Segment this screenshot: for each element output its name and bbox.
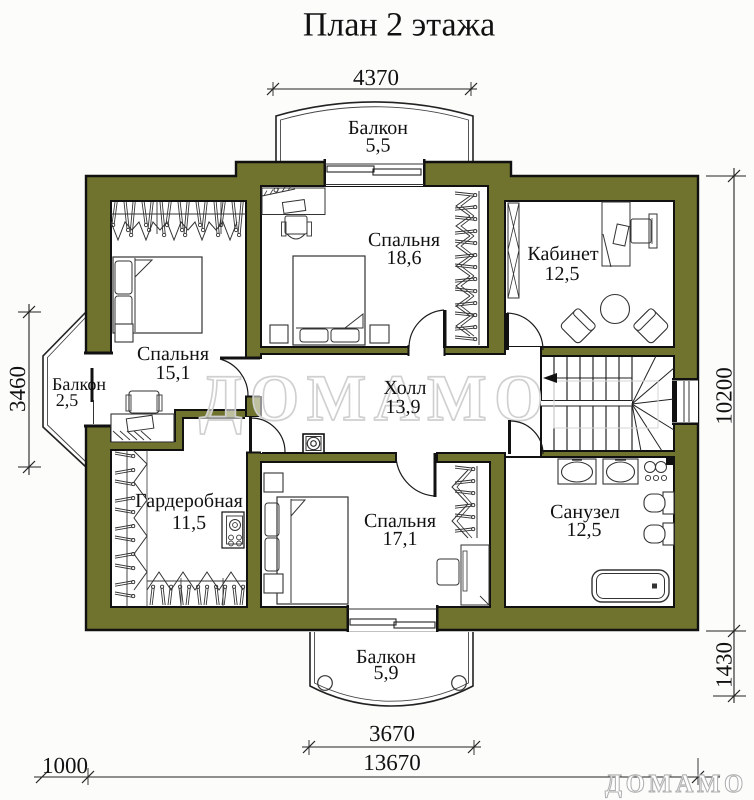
svg-text:План 2 этажа: План 2 этажа — [303, 7, 495, 44]
svg-text:15,1: 15,1 — [156, 362, 191, 384]
svg-text:1430: 1430 — [712, 642, 737, 688]
svg-text:18,6: 18,6 — [387, 247, 422, 269]
svg-text:Гардеробная: Гардеробная — [135, 490, 243, 512]
svg-text:13670: 13670 — [363, 750, 421, 775]
svg-text:17,1: 17,1 — [383, 528, 418, 550]
svg-text:12,5: 12,5 — [567, 519, 602, 541]
svg-text:Кабинет: Кабинет — [527, 243, 598, 265]
svg-text:4370: 4370 — [353, 65, 399, 90]
svg-text:12,5: 12,5 — [545, 263, 580, 285]
svg-text:ДОМАМО: ДОМАМО — [605, 769, 747, 798]
svg-text:3670: 3670 — [369, 721, 415, 746]
svg-text:10200: 10200 — [712, 367, 737, 425]
svg-text:3460: 3460 — [5, 366, 30, 412]
svg-text:13,9: 13,9 — [386, 396, 421, 418]
svg-text:2,5: 2,5 — [56, 390, 79, 410]
svg-text:5,5: 5,5 — [366, 135, 391, 157]
svg-text:5,9: 5,9 — [374, 662, 399, 684]
svg-text:1000: 1000 — [42, 753, 88, 778]
svg-text:11,5: 11,5 — [172, 512, 206, 534]
